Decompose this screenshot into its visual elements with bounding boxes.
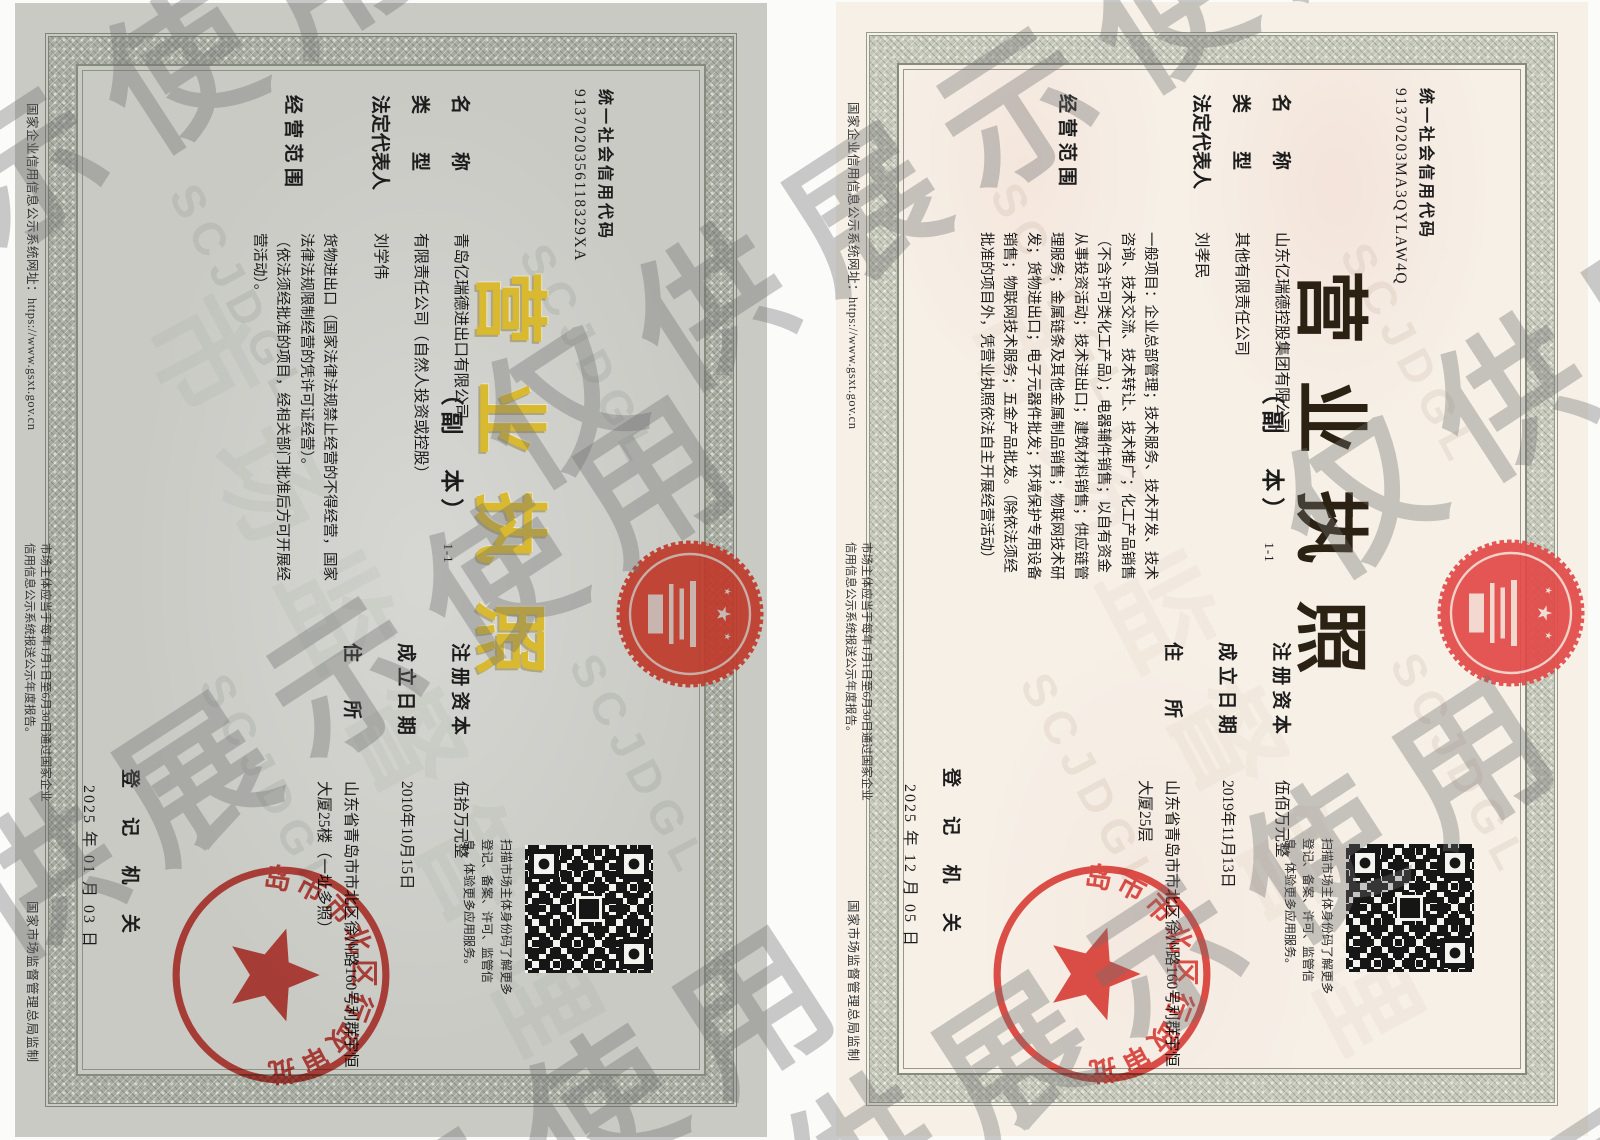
svg-text:★: ★ bbox=[723, 587, 733, 595]
qr-code bbox=[1346, 844, 1474, 972]
field-legal-rep: 法定代表人 刘孝民 bbox=[1189, 94, 1216, 279]
qr-finder-icon bbox=[1440, 848, 1470, 878]
qr-code bbox=[525, 845, 653, 973]
field-capital-label: 注 册 资 本 bbox=[448, 643, 475, 767]
credit-code-block: 统一社会信用代码 91370203MA3QYLAW4Q bbox=[1391, 88, 1440, 285]
business-license-right: SCJDGL SCJDGL SCJDGL SCJDGL 市场监督管理 统一社会信… bbox=[836, 2, 1588, 1136]
field-address-label: 住 所 bbox=[1161, 642, 1188, 766]
field-legal-rep-value: 刘学伟 bbox=[369, 233, 395, 280]
credit-code-block: 统一社会信用代码 9137020356118329XA bbox=[570, 89, 619, 262]
credit-code-value: 91370203MA3QYLAW4Q bbox=[1391, 88, 1409, 285]
registration-authority-label: 登 记 机 关 bbox=[118, 769, 145, 945]
business-license-left: SCJDGL SCJDGL SCJDGL SCJDGL 市场监督管理 统一社会信… bbox=[15, 3, 767, 1137]
registration-seal: 青岛市市北区行政审批局 bbox=[169, 863, 393, 1087]
license-right-scan: SCJDGL SCJDGL SCJDGL SCJDGL 市场监督管理 统一社会信… bbox=[836, 2, 1591, 1138]
registration-seal: 青岛市市北区行政审批局 bbox=[990, 862, 1214, 1086]
qr-finder-icon bbox=[1440, 938, 1470, 968]
field-type: 类 型 其他有限责任公司 bbox=[1229, 94, 1256, 356]
field-name-label: 名 称 bbox=[448, 95, 475, 219]
scanned-licenses-page: SCJDGL SCJDGL SCJDGL SCJDGL 市场监督管理 统一社会信… bbox=[0, 0, 1600, 1140]
national-emblem-icon: ★ ★ ★ bbox=[615, 539, 765, 689]
field-established-value: 2010年10月15日 bbox=[395, 781, 421, 890]
field-established-value: 2019年11月13日 bbox=[1216, 780, 1242, 888]
svg-text:★: ★ bbox=[723, 632, 733, 640]
svg-text:★: ★ bbox=[1544, 586, 1554, 594]
field-name-label: 名 称 bbox=[1269, 94, 1296, 218]
field-established: 成 立 日 期 2010年10月15日 bbox=[394, 643, 421, 890]
margin-made-by: 国家市场监督管理总局监制 bbox=[24, 901, 43, 1063]
field-name-value: 山东亿瑞德控股集团有限公司 bbox=[1270, 232, 1296, 434]
margin-website: 国家企业信用信息公示系统网址：https://www.gsxt.gov.cn bbox=[24, 103, 43, 430]
field-capital: 注 册 资 本 伍拾万元整 bbox=[448, 643, 475, 859]
field-established-label: 成 立 日 期 bbox=[1215, 642, 1242, 766]
svg-text:★: ★ bbox=[712, 605, 733, 622]
license-title: 营业执照 bbox=[1283, 142, 1390, 802]
field-legal-rep-label: 法定代表人 bbox=[1189, 94, 1216, 218]
qr-finder-icon bbox=[1350, 848, 1380, 878]
field-address-label: 住 所 bbox=[340, 643, 367, 767]
field-scope-label: 经 营 范 围 bbox=[281, 95, 308, 219]
field-type-label: 类 型 bbox=[408, 95, 435, 219]
field-name: 名 称 青岛亿瑞德进出口有限公司 bbox=[448, 95, 475, 419]
field-legal-rep: 法定代表人 刘学伟 bbox=[368, 95, 395, 280]
field-capital: 注 册 资 本 伍佰万元整 bbox=[1269, 642, 1296, 858]
credit-code-label: 统一社会信用代码 bbox=[1416, 88, 1440, 285]
field-legal-rep-value: 刘孝民 bbox=[1190, 232, 1216, 279]
field-legal-rep-label: 法定代表人 bbox=[368, 95, 395, 219]
copy-number: 1-1 bbox=[1262, 542, 1277, 562]
svg-text:★: ★ bbox=[1533, 604, 1554, 621]
field-scope-value: 一般项目：企业总部管理；技术服务、技术开发、技术咨询、技术交流、技术转让、技术推… bbox=[973, 232, 1164, 586]
margin-annual-report-note: 市场主体应当于每年1月1日至6月30日通过国家企业信用信息公示系统报送公示年度报… bbox=[842, 542, 874, 812]
margin-website: 国家企业信用信息公示系统网址：https://www.gsxt.gov.cn bbox=[845, 102, 864, 429]
field-type-value: 其他有限责任公司 bbox=[1230, 232, 1256, 356]
qr-finder-icon bbox=[619, 939, 649, 969]
qr-finder-icon bbox=[529, 849, 559, 879]
scope-text: 一般项目：企业总部管理；技术服务、技术开发、技术咨询、技术交流、技术转让、技术推… bbox=[978, 232, 1158, 580]
scope-note: （依法须经批准的项目，经相关部门批准后方可开展经营活动）。 bbox=[251, 233, 290, 581]
field-name: 名 称 山东亿瑞德控股集团有限公司 bbox=[1269, 94, 1296, 434]
registration-authority-label: 登 记 机 关 bbox=[939, 768, 966, 944]
credit-code-value: 9137020356118329XA bbox=[570, 89, 588, 262]
qr-finder-icon bbox=[619, 849, 649, 879]
field-scope: 经 营 范 围 一般项目：企业总部管理；技术服务、技术开发、技术咨询、技术交流、… bbox=[973, 94, 1164, 586]
national-emblem-icon: ★ ★ ★ bbox=[1436, 538, 1586, 688]
margin-made-by: 国家市场监督管理总局监制 bbox=[845, 900, 864, 1062]
qr-caption: 扫描市场主体身份码了解更多登记、备案、许可、监管信息，体验更多应用服务。 bbox=[459, 839, 515, 1003]
margin-annual-report-note: 市场主体应当于每年1月1日至6月30日通过国家企业信用信息公示系统报送公示年度报… bbox=[21, 543, 53, 813]
license-title: 营业执照 bbox=[462, 143, 569, 803]
field-scope-value: 货物进出口（国家法律法规禁止经营的不得经营，国家法律法规限制经营的凭许可证经营）… bbox=[246, 233, 343, 587]
field-scope: 经 营 范 围 货物进出口（国家法律法规禁止经营的不得经营，国家法律法规限制经营… bbox=[246, 95, 343, 587]
field-established-label: 成 立 日 期 bbox=[394, 643, 421, 767]
qr-center-logo bbox=[576, 896, 602, 922]
field-scope-label: 经 营 范 围 bbox=[1055, 94, 1082, 218]
field-established: 成 立 日 期 2019年11月13日 bbox=[1215, 642, 1242, 888]
issue-date: 2025 年 12 月 05 日 bbox=[900, 784, 924, 948]
issue-date: 2025 年 01 月 03 日 bbox=[79, 785, 103, 949]
scope-text: 货物进出口（国家法律法规禁止经营的不得经营，国家法律法规限制经营的凭许可证经营）… bbox=[298, 233, 337, 581]
field-type-label: 类 型 bbox=[1229, 94, 1256, 218]
license-left-scan: SCJDGL SCJDGL SCJDGL SCJDGL 市场监督管理 统一社会信… bbox=[15, 3, 767, 1137]
credit-code-label: 统一社会信用代码 bbox=[595, 89, 619, 262]
qr-caption: 扫描市场主体身份码了解更多登记、备案、许可、监管信息，体验更多应用服务。 bbox=[1280, 838, 1336, 1002]
copy-number: 1-1 bbox=[441, 543, 456, 563]
svg-text:★: ★ bbox=[1544, 631, 1554, 639]
field-type-value: 有限责任公司（自然人投资或控股） bbox=[409, 233, 435, 481]
field-type: 类 型 有限责任公司（自然人投资或控股） bbox=[408, 95, 435, 481]
qr-center-logo bbox=[1397, 895, 1423, 921]
field-name-value: 青岛亿瑞德进出口有限公司 bbox=[449, 233, 475, 419]
field-capital-label: 注 册 资 本 bbox=[1269, 642, 1296, 766]
